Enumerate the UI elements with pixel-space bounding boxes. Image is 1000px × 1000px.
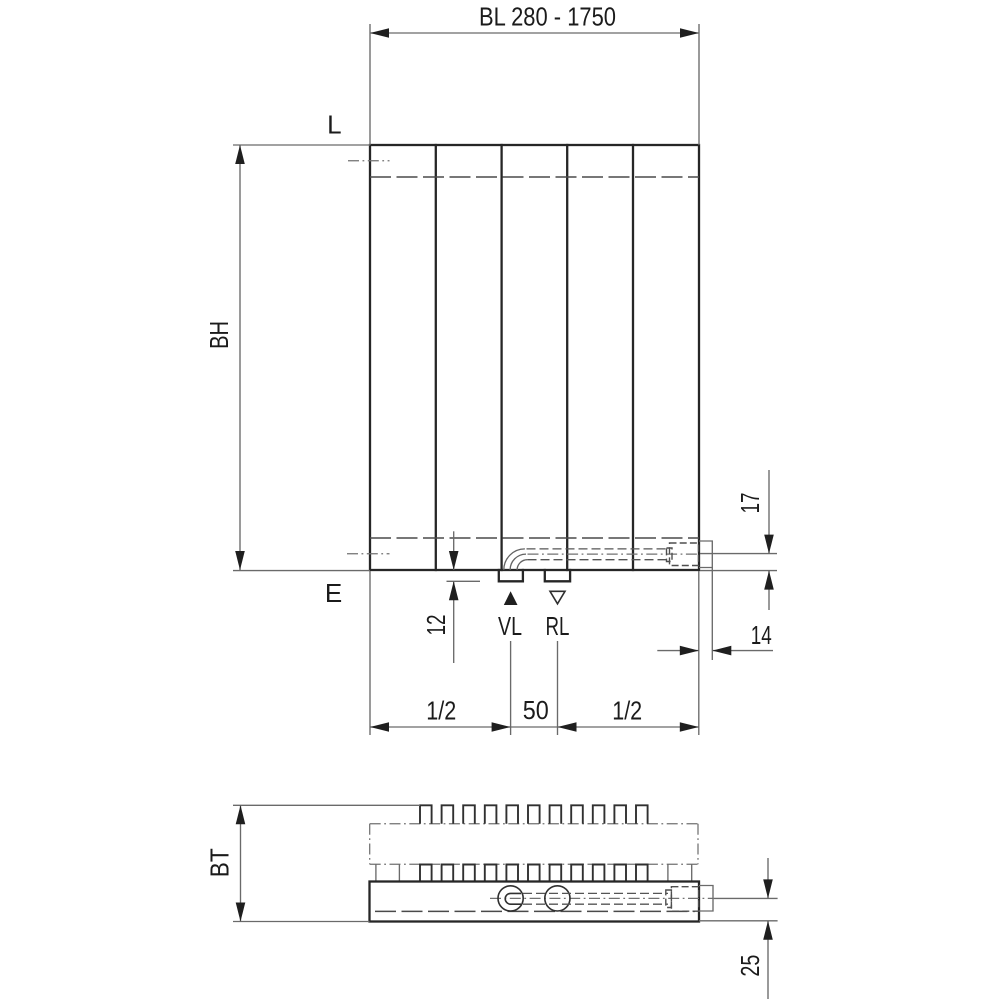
svg-text:12: 12: [421, 615, 451, 636]
svg-text:50: 50: [523, 695, 549, 725]
svg-text:1/2: 1/2: [612, 696, 642, 726]
svg-text:BT: BT: [205, 848, 235, 877]
svg-text:BL 280 - 1750: BL 280 - 1750: [479, 2, 616, 32]
svg-text:14: 14: [751, 620, 772, 650]
svg-text:VL: VL: [498, 611, 522, 641]
svg-text:17: 17: [735, 493, 765, 514]
svg-text:E: E: [325, 578, 342, 608]
svg-text:L: L: [327, 110, 341, 140]
svg-text:RL: RL: [546, 611, 570, 641]
svg-text:BH: BH: [204, 321, 234, 349]
svg-text:1/2: 1/2: [426, 695, 456, 725]
svg-text:25: 25: [735, 955, 765, 977]
